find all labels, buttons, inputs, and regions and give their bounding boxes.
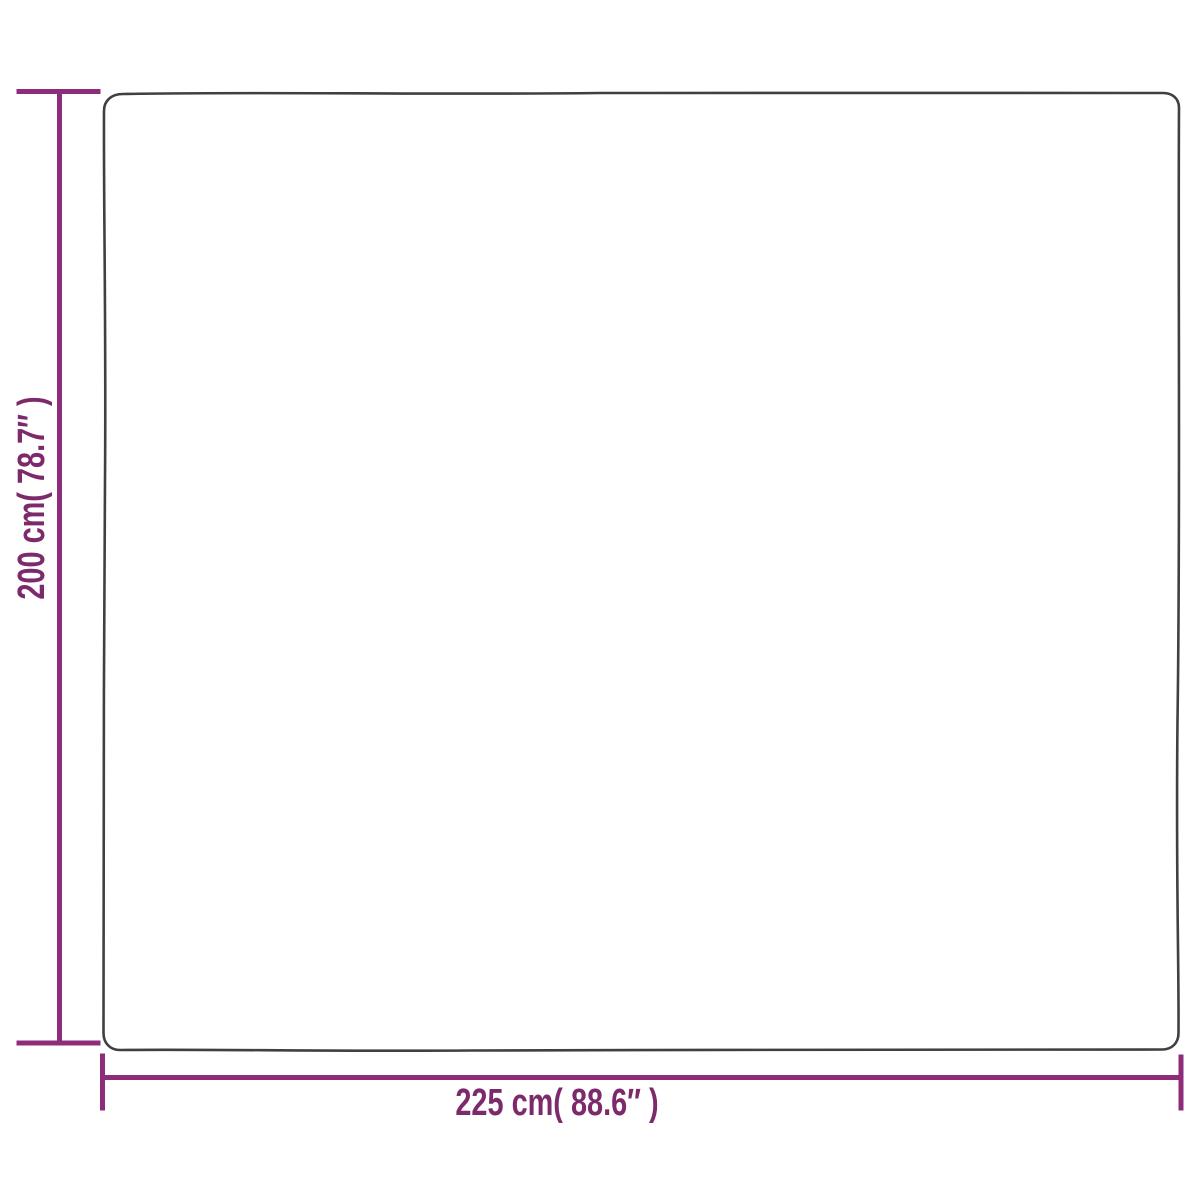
product-dimension-diagram: 200 cm( 78.7″ ) 225 cm( 88.6″ ) xyxy=(0,0,1200,1200)
height-dimension-label: 200 cm( 78.7″ ) xyxy=(13,396,51,599)
diagram-canvas xyxy=(0,0,1200,1200)
product-outline-shape xyxy=(104,92,1180,1050)
width-dimension-label: 225 cm( 88.6″ ) xyxy=(455,1084,658,1122)
